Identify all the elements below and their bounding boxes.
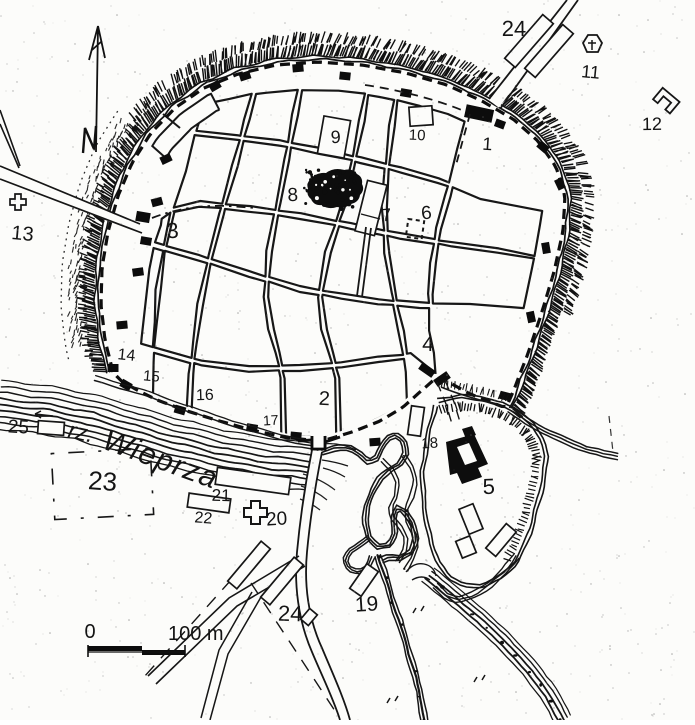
svg-text:17: 17	[262, 412, 279, 429]
svg-text:5: 5	[482, 474, 495, 499]
svg-text:24: 24	[502, 16, 527, 41]
svg-text:4: 4	[422, 333, 434, 356]
svg-text:12: 12	[642, 114, 662, 134]
svg-text:21: 21	[211, 486, 230, 505]
svg-text:13: 13	[10, 222, 34, 246]
svg-text:6: 6	[420, 203, 433, 225]
svg-text:7: 7	[380, 205, 392, 226]
svg-text:1: 1	[482, 134, 493, 155]
svg-text:2: 2	[318, 388, 330, 411]
svg-text:18: 18	[421, 435, 439, 453]
svg-text:23: 23	[87, 465, 118, 497]
svg-text:24: 24	[278, 601, 303, 627]
svg-text:8: 8	[287, 185, 299, 206]
svg-text:100 m: 100 m	[168, 623, 224, 645]
svg-text:20: 20	[265, 508, 287, 530]
svg-text:22: 22	[194, 509, 213, 527]
svg-text:10: 10	[409, 127, 426, 145]
svg-text:11: 11	[580, 61, 601, 83]
svg-text:3: 3	[166, 218, 180, 244]
svg-text:19: 19	[354, 592, 379, 616]
svg-text:16: 16	[196, 387, 214, 405]
svg-text:15: 15	[142, 367, 160, 386]
svg-text:14: 14	[117, 346, 137, 365]
svg-text:0: 0	[84, 621, 95, 643]
svg-text:25: 25	[7, 416, 29, 438]
svg-text:9: 9	[330, 127, 341, 147]
